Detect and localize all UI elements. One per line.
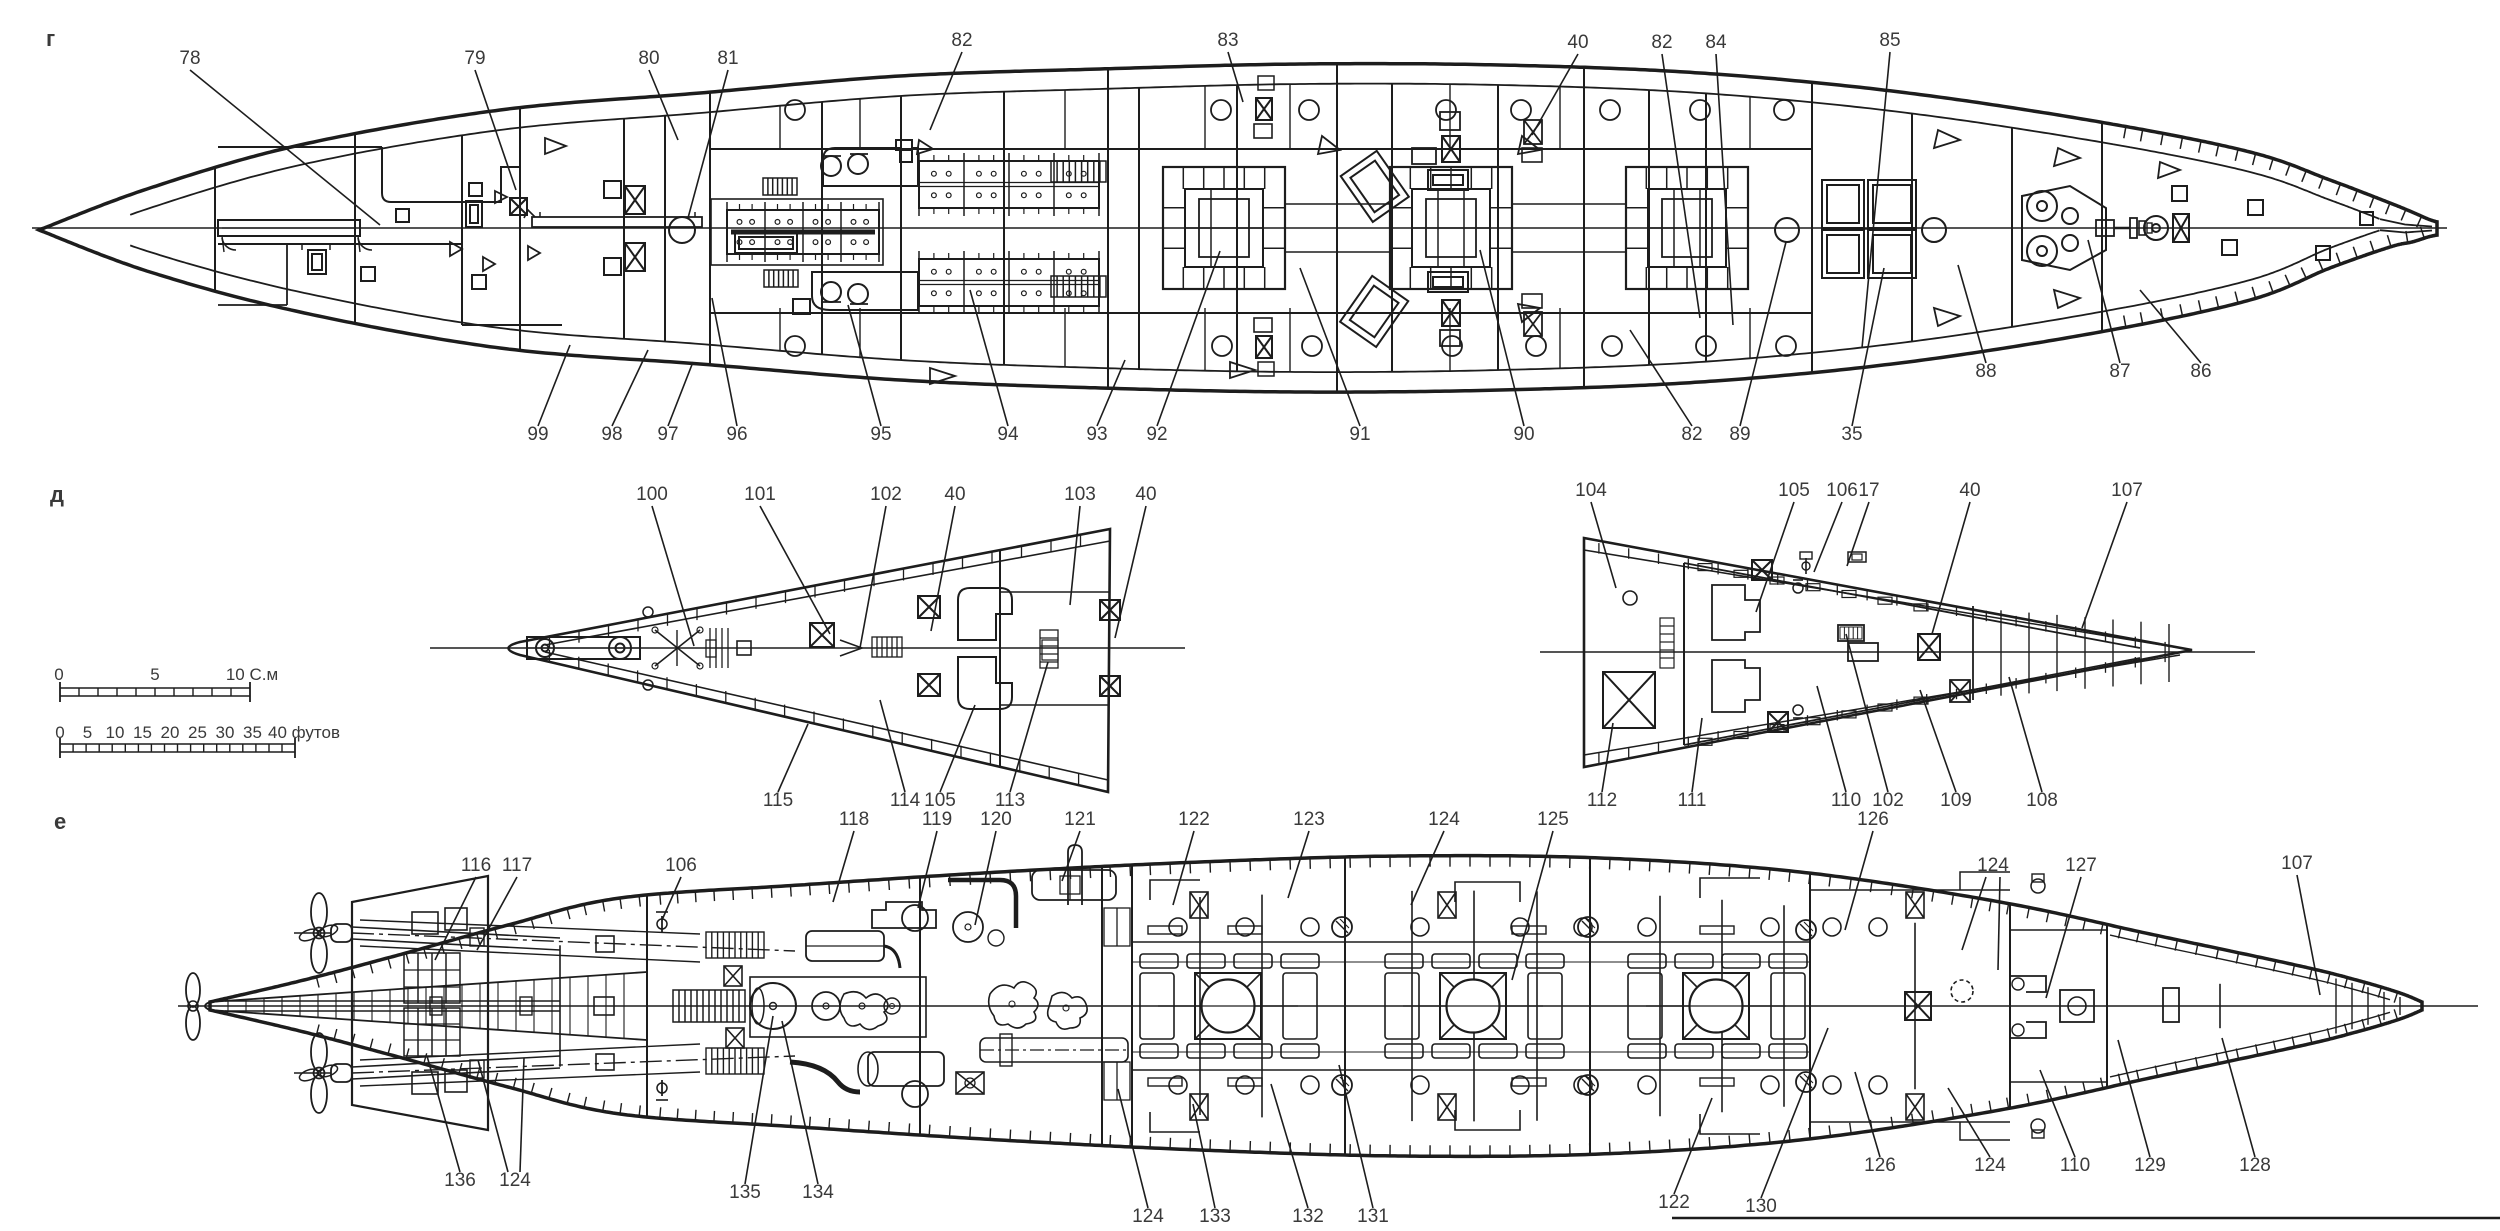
svg-text:40 футов: 40 футов [268,723,340,742]
svg-text:85: 85 [1879,30,1900,51]
svg-text:125: 125 [1537,809,1569,830]
svg-text:124: 124 [1132,1206,1164,1226]
svg-text:82: 82 [1681,424,1702,445]
svg-text:115: 115 [763,790,793,811]
svg-text:105: 105 [924,790,956,811]
svg-text:126: 126 [1857,809,1889,830]
svg-text:118: 118 [839,809,869,830]
svg-text:103: 103 [1064,484,1096,505]
svg-text:79: 79 [464,48,485,69]
svg-text:82: 82 [1651,32,1672,53]
svg-text:108: 108 [2026,790,2058,811]
svg-text:124: 124 [499,1170,531,1191]
svg-text:107: 107 [2111,480,2143,501]
svg-text:110: 110 [1831,790,1861,811]
svg-text:87: 87 [2109,361,2130,382]
svg-text:86: 86 [2190,361,2211,382]
svg-text:114: 114 [890,790,921,811]
svg-text:106: 106 [665,855,697,876]
svg-text:104: 104 [1575,480,1607,501]
svg-text:5: 5 [83,723,92,742]
svg-text:д: д [50,482,64,507]
svg-text:99: 99 [527,424,548,445]
svg-text:80: 80 [638,48,659,69]
svg-text:81: 81 [717,48,738,69]
svg-text:92: 92 [1146,424,1167,445]
svg-text:121: 121 [1064,809,1096,830]
svg-text:20: 20 [161,723,180,742]
svg-text:15: 15 [133,723,152,742]
svg-text:123: 123 [1293,809,1325,830]
svg-text:40: 40 [1567,32,1588,53]
svg-text:88: 88 [1975,361,1996,382]
svg-text:78: 78 [179,48,200,69]
svg-text:122: 122 [1658,1192,1690,1213]
svg-text:17: 17 [1858,480,1879,501]
svg-text:40: 40 [1135,484,1156,505]
svg-text:101: 101 [744,484,776,505]
svg-text:95: 95 [870,424,891,445]
svg-text:83: 83 [1217,30,1238,51]
svg-text:132: 132 [1292,1206,1324,1226]
svg-text:117: 117 [502,855,532,876]
svg-text:25: 25 [188,723,207,742]
svg-text:124: 124 [1977,855,2009,876]
svg-text:135: 135 [729,1182,761,1203]
svg-text:122: 122 [1178,809,1210,830]
svg-text:107: 107 [2281,853,2313,874]
svg-text:82: 82 [951,30,972,51]
svg-text:124: 124 [1428,809,1460,830]
svg-text:94: 94 [997,424,1019,445]
svg-text:0: 0 [55,723,64,742]
svg-text:10: 10 [106,723,125,742]
svg-text:130: 130 [1745,1196,1777,1217]
svg-text:119: 119 [922,809,952,830]
svg-text:102: 102 [1872,790,1904,811]
svg-text:105: 105 [1778,480,1810,501]
svg-text:96: 96 [726,424,747,445]
svg-text:30: 30 [216,723,235,742]
svg-text:128: 128 [2239,1155,2271,1176]
svg-text:90: 90 [1513,424,1534,445]
svg-text:136: 136 [444,1170,476,1191]
svg-text:109: 109 [1940,790,1972,811]
svg-text:10 С.м: 10 С.м [226,665,278,684]
svg-text:112: 112 [1587,790,1617,811]
svg-text:116: 116 [461,855,491,876]
svg-text:126: 126 [1864,1155,1896,1176]
svg-text:124: 124 [1974,1155,2006,1176]
svg-text:129: 129 [2134,1155,2166,1176]
svg-text:102: 102 [870,484,902,505]
svg-text:100: 100 [636,484,668,505]
svg-text:г: г [46,26,55,51]
svg-text:35: 35 [243,723,262,742]
svg-text:е: е [54,809,66,834]
svg-text:120: 120 [980,809,1012,830]
svg-text:110: 110 [2060,1155,2090,1176]
svg-text:127: 127 [2065,855,2097,876]
svg-text:98: 98 [601,424,622,445]
svg-text:131: 131 [1357,1206,1389,1226]
svg-text:40: 40 [944,484,965,505]
svg-text:111: 111 [1678,790,1707,811]
svg-text:40: 40 [1959,480,1980,501]
svg-text:91: 91 [1349,424,1370,445]
svg-text:97: 97 [657,424,678,445]
svg-text:5: 5 [150,665,159,684]
svg-text:134: 134 [802,1182,834,1203]
svg-text:35: 35 [1841,424,1862,445]
svg-text:84: 84 [1705,32,1727,53]
svg-text:106: 106 [1826,480,1858,501]
svg-text:133: 133 [1199,1206,1231,1226]
svg-text:113: 113 [995,790,1025,811]
svg-text:93: 93 [1086,424,1107,445]
svg-text:89: 89 [1729,424,1750,445]
svg-text:0: 0 [54,665,63,684]
